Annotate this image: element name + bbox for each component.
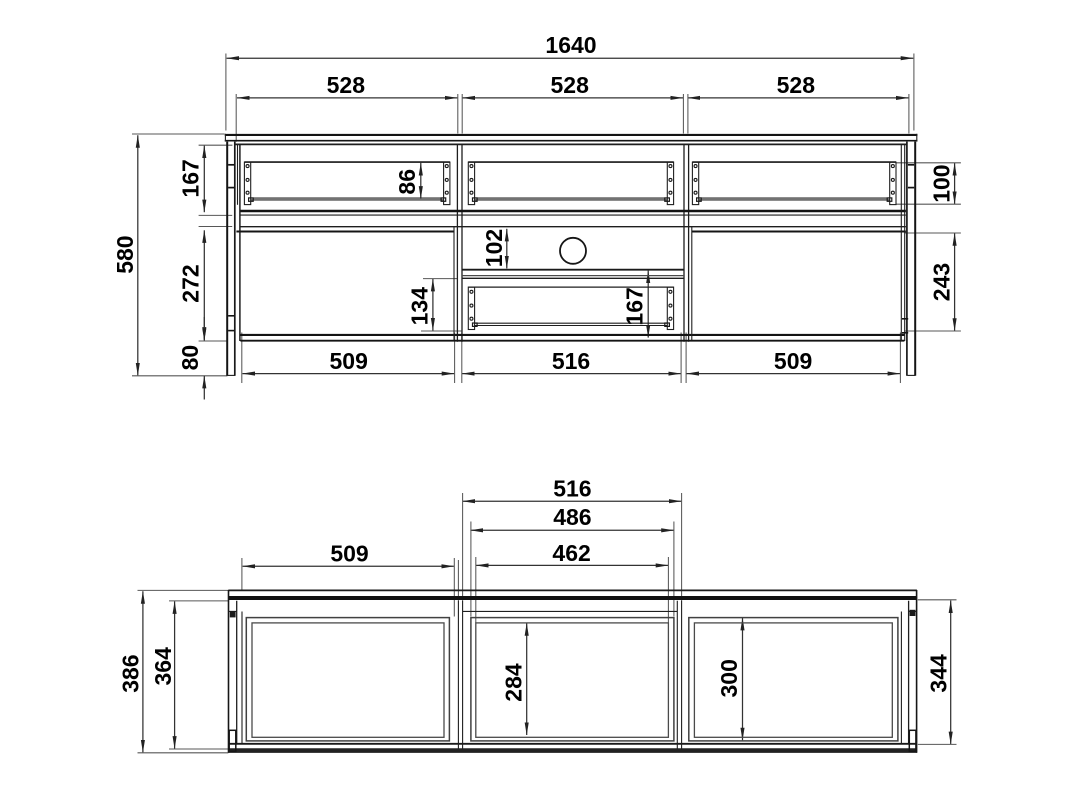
svg-text:134: 134 (407, 287, 433, 326)
svg-text:516: 516 (552, 348, 590, 374)
svg-text:102: 102 (481, 229, 507, 267)
svg-text:528: 528 (551, 72, 590, 98)
svg-text:167: 167 (178, 159, 204, 197)
svg-text:284: 284 (500, 663, 526, 702)
svg-text:516: 516 (553, 476, 591, 502)
svg-text:272: 272 (178, 264, 204, 302)
svg-text:364: 364 (150, 647, 176, 686)
svg-text:509: 509 (774, 348, 812, 374)
svg-text:300: 300 (716, 659, 742, 697)
svg-text:486: 486 (553, 504, 591, 530)
svg-text:509: 509 (330, 348, 368, 374)
svg-text:100: 100 (929, 164, 955, 202)
svg-text:80: 80 (177, 345, 203, 371)
svg-text:528: 528 (777, 72, 816, 98)
svg-text:386: 386 (117, 654, 143, 692)
svg-text:167: 167 (622, 287, 648, 325)
svg-text:86: 86 (394, 169, 420, 195)
svg-text:462: 462 (552, 540, 590, 566)
svg-text:243: 243 (929, 263, 955, 301)
svg-text:509: 509 (330, 541, 368, 567)
svg-text:1640: 1640 (545, 32, 596, 58)
svg-text:528: 528 (327, 72, 366, 98)
svg-text:580: 580 (112, 235, 138, 273)
svg-text:344: 344 (926, 654, 952, 693)
